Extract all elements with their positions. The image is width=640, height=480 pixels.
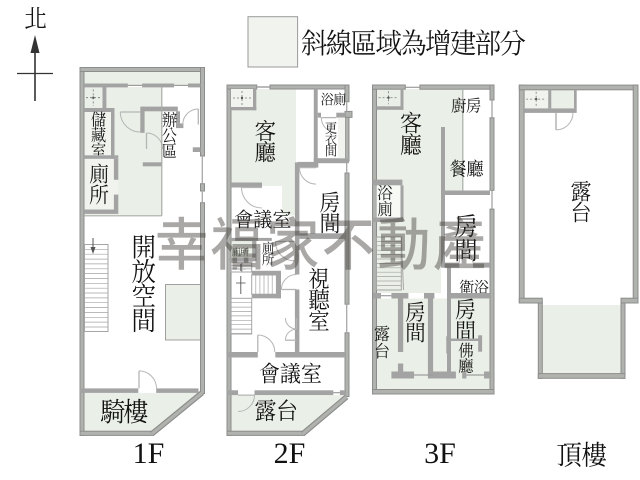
svg-text:1F: 1F <box>133 437 165 470</box>
svg-text:2F: 2F <box>274 437 306 470</box>
svg-text:3F: 3F <box>424 437 456 470</box>
